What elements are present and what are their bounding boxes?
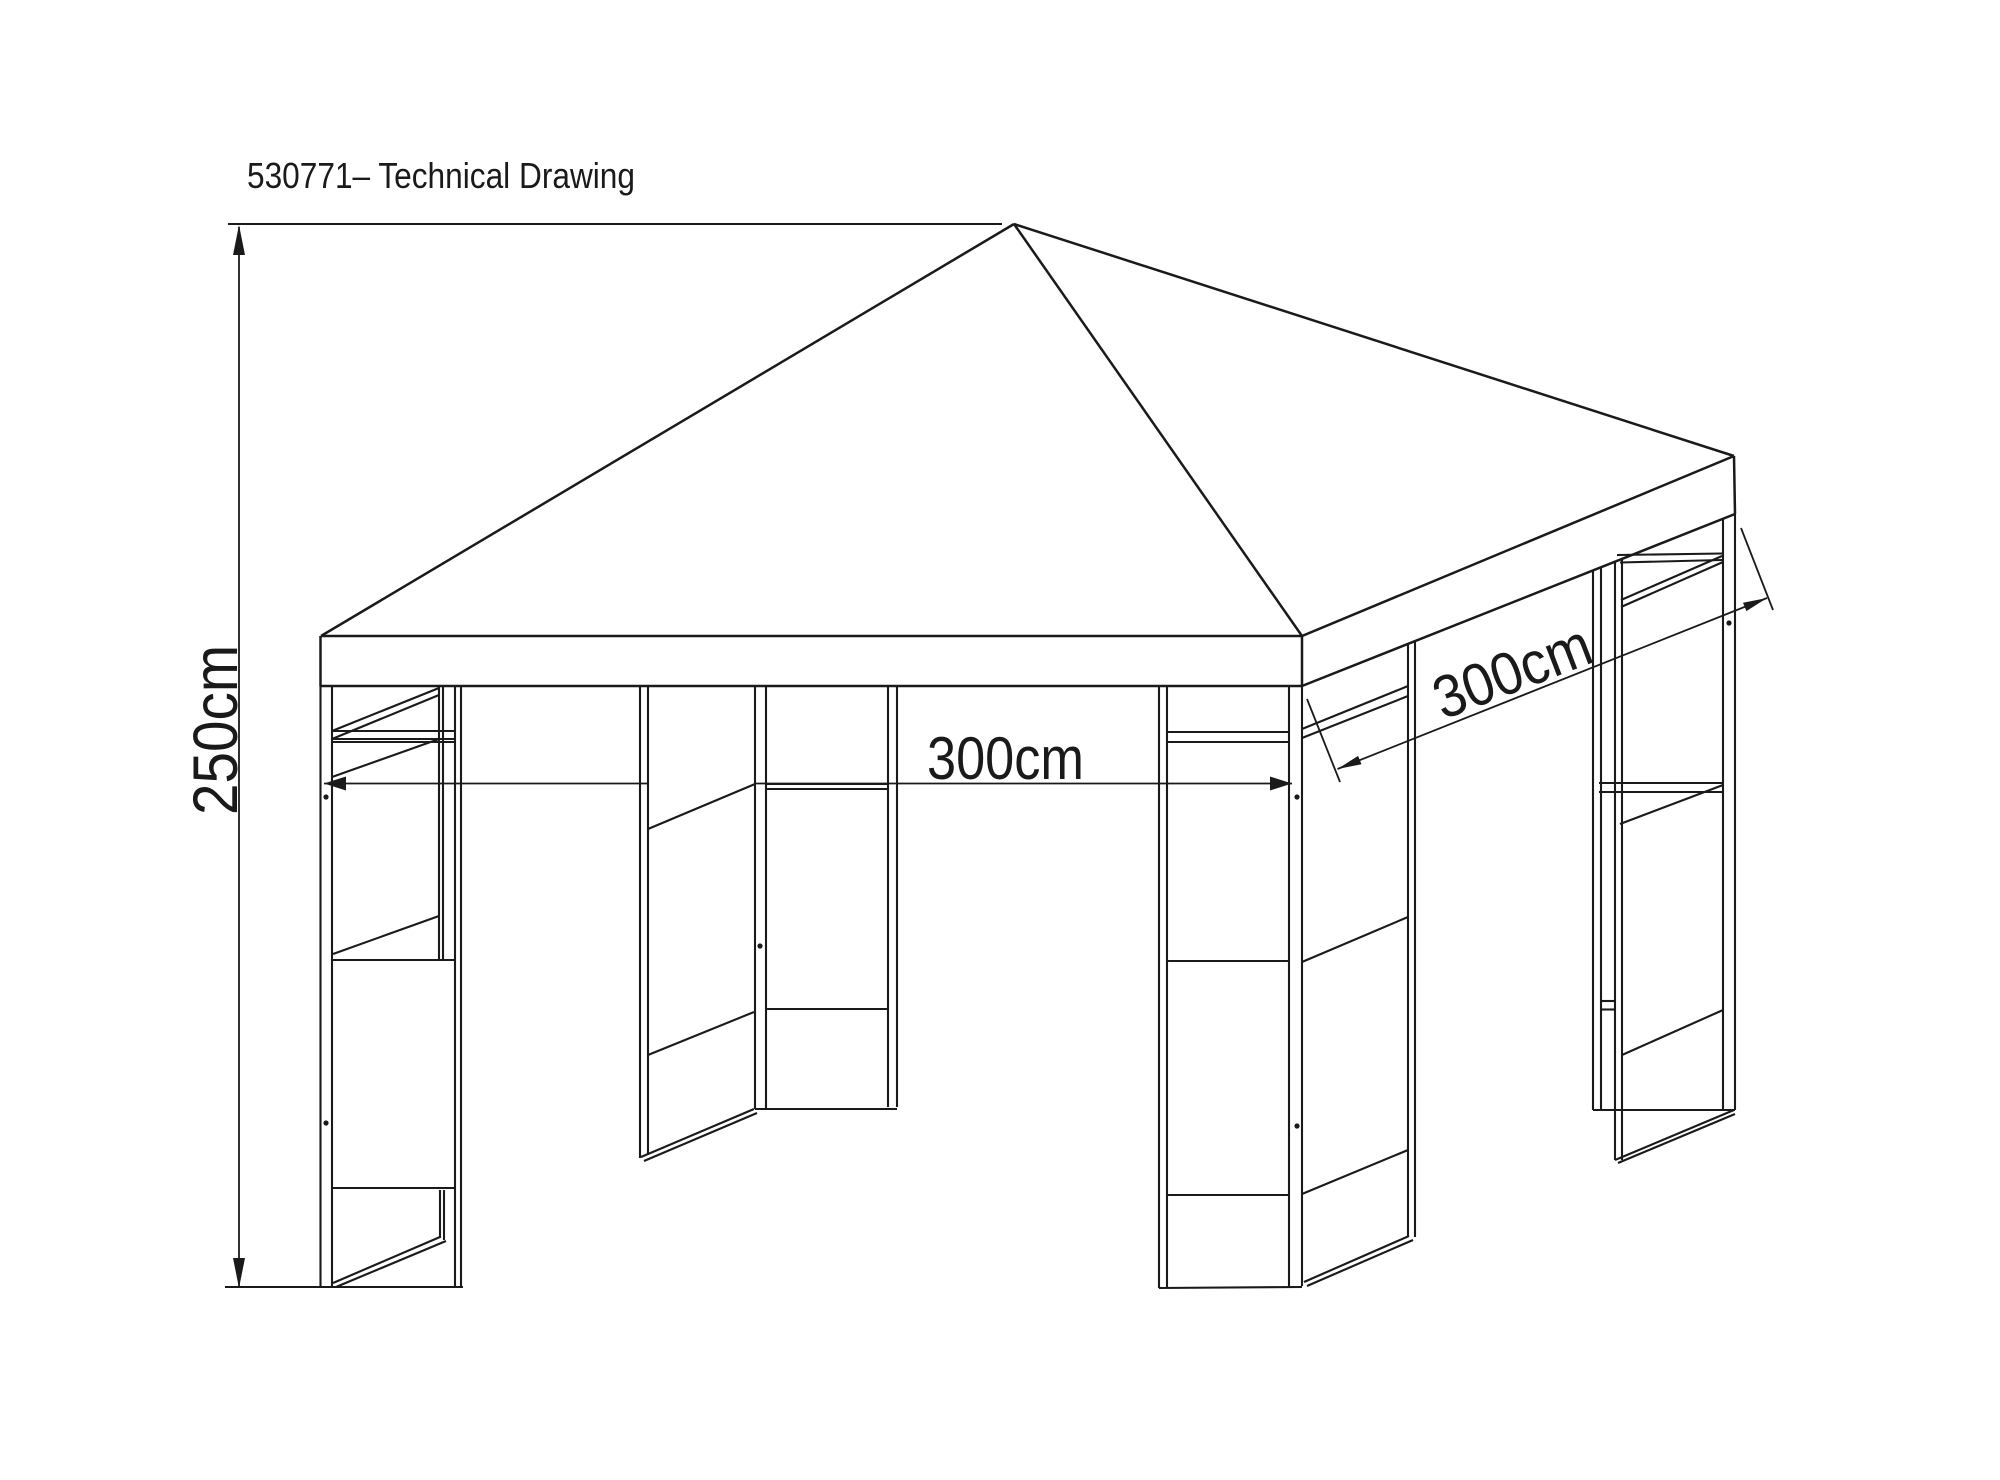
svg-text:300cm: 300cm xyxy=(927,725,1084,792)
svg-text:250cm: 250cm xyxy=(181,645,251,815)
svg-text:530771– Technical Drawing: 530771– Technical Drawing xyxy=(247,155,635,196)
